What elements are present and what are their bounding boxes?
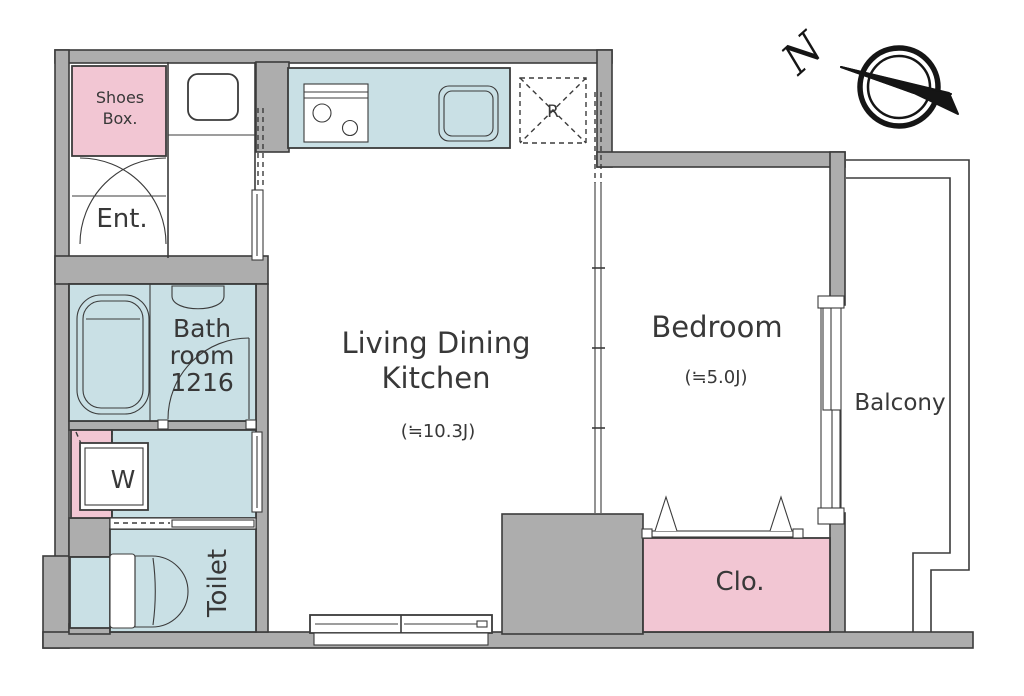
bathroom-label-2: room — [170, 341, 235, 370]
hallway — [168, 62, 263, 260]
balcony-window-panel-2 — [832, 410, 840, 510]
wall-bedroom-top — [597, 152, 845, 167]
ldk-label-2: Kitchen — [382, 361, 491, 395]
ldk-window-sill — [314, 633, 488, 645]
washer-label: W — [111, 465, 136, 494]
balcony-window-panel-1 — [823, 308, 831, 410]
wall-right-upper — [830, 152, 845, 305]
fridge-space-label: R — [547, 102, 559, 122]
hall-cabinet-icon — [188, 74, 238, 120]
ldk-area-label: (≒10.3J) — [401, 421, 476, 442]
ldk-label-1: Living Dining — [341, 326, 530, 360]
toilet-tank-recess — [70, 557, 110, 628]
wall-kitchen-block — [256, 62, 289, 152]
shoes-box-label-1: Shoes — [96, 88, 144, 107]
bathroom-label-3: 1216 — [170, 368, 234, 397]
floor-plan-drawing: Shoes Box. Ent. Bath room 1216 W Toilet … — [0, 0, 1024, 696]
toilet-door-panel — [172, 520, 254, 527]
toilet-door — [110, 518, 256, 529]
closet-fold-door-1 — [655, 497, 677, 531]
closet-door-track — [652, 531, 793, 537]
bathroom-label-1: Bath — [173, 314, 231, 343]
closet-door-jamb-right — [793, 529, 803, 538]
wall-bottom-center-block — [502, 514, 643, 634]
wall-step-down — [597, 50, 612, 167]
floor-plan-page: Shoes Box. Ent. Bath room 1216 W Toilet … — [0, 0, 1024, 696]
wall-left — [55, 50, 69, 562]
north-compass-icon: N — [772, 22, 958, 126]
toilet-tank — [110, 554, 135, 628]
bedroom-area-label: (≒5.0J) — [684, 367, 747, 388]
bathroom-door-jamb-right — [246, 420, 256, 429]
bathroom-door-jamb-left — [158, 420, 168, 429]
balcony-window-cap-top — [818, 296, 844, 308]
stove-body — [304, 84, 368, 142]
ldk-window — [310, 615, 492, 645]
stove-icon — [304, 84, 368, 142]
wall-right-lower — [830, 513, 845, 634]
shoes-box-label-2: Box. — [103, 109, 138, 128]
balcony-label: Balcony — [854, 390, 945, 416]
closet-fold-door-2 — [770, 497, 792, 531]
closet-doors — [642, 497, 803, 538]
entrance-label: Ent. — [96, 204, 147, 234]
balcony-window-cap-bottom — [818, 508, 844, 524]
toilet-label: Toilet — [203, 549, 233, 618]
wall-top — [55, 50, 612, 63]
ldk-window-handle — [477, 621, 487, 627]
balcony-window — [818, 296, 844, 524]
compass-north-label: N — [772, 22, 834, 85]
wall-hall-bath-divider — [55, 256, 268, 284]
bedroom-label: Bedroom — [651, 310, 782, 344]
closet-label: Clo. — [715, 567, 764, 597]
wall-toilet-upper-left — [69, 518, 110, 557]
closet-door-jamb-left — [642, 529, 652, 538]
